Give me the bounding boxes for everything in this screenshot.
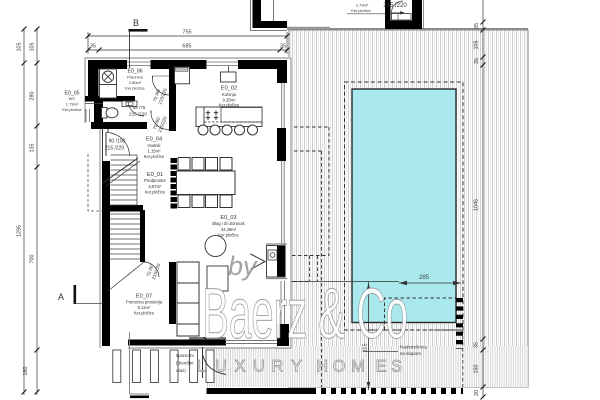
svg-text:1.15m²: 1.15m²: [147, 149, 161, 154]
svg-text:E0_04: E0_04: [146, 137, 162, 143]
svg-text:105: 105: [474, 41, 480, 50]
svg-text:O: O: [333, 358, 346, 376]
svg-text:S: S: [391, 358, 402, 376]
svg-text:Ker.pločice: Ker.pločice: [145, 189, 166, 194]
svg-text:150: 150: [474, 365, 480, 374]
svg-text:Praonica: Praonica: [127, 75, 144, 80]
svg-text:U: U: [253, 358, 265, 376]
svg-text:215 /220: 215 /220: [129, 112, 147, 117]
svg-text:215 /220: 215 /220: [105, 146, 125, 152]
svg-text:Ker.pločice: Ker.pločice: [125, 86, 145, 91]
svg-text:U: U: [215, 358, 227, 376]
svg-text:700: 700: [30, 255, 36, 264]
svg-text:35: 35: [280, 44, 286, 50]
svg-text:Predprostor: Predprostor: [144, 178, 166, 183]
svg-text:Ker.pločice: Ker.pločice: [218, 232, 239, 237]
svg-text:35: 35: [474, 342, 480, 348]
svg-text:Baerz & Co: Baerz & Co: [202, 275, 408, 354]
svg-text:WC: WC: [69, 96, 76, 101]
svg-text:(dvorišni: (dvorišni: [176, 361, 193, 366]
svg-text:1.79m²: 1.79m²: [66, 102, 79, 107]
svg-text:1045: 1045: [474, 199, 480, 211]
svg-text:9.11m²: 9.11m²: [138, 305, 151, 310]
svg-text:E0_02: E0_02: [221, 86, 237, 92]
svg-text:6,87m²: 6,87m²: [148, 184, 162, 189]
svg-text:H: H: [316, 358, 328, 376]
svg-text:1,79m²: 1,79m²: [356, 3, 369, 8]
svg-text:B: B: [133, 18, 139, 28]
svg-text:Ker.pločice: Ker.pločice: [219, 103, 240, 108]
svg-text:X: X: [234, 358, 245, 376]
svg-text:Ker.pločice: Ker.pločice: [134, 311, 155, 316]
svg-text:135: 135: [30, 144, 36, 153]
svg-text:755: 755: [182, 30, 191, 36]
svg-text:Blag i dn.boravak: Blag i dn.boravak: [212, 221, 245, 226]
svg-text:285: 285: [419, 275, 430, 281]
svg-text:A: A: [58, 292, 64, 302]
svg-text:Pomoćna prostorija: Pomoćna prostorija: [126, 300, 163, 305]
svg-text:Ker.pločice: Ker.pločice: [144, 154, 165, 159]
svg-text:180: 180: [23, 367, 29, 376]
svg-text:105: 105: [17, 43, 23, 52]
svg-text:35: 35: [90, 44, 96, 50]
svg-text:1295: 1295: [17, 225, 23, 237]
svg-text:Kuhinja: Kuhinja: [222, 92, 237, 97]
svg-text:Ker.pločice: Ker.pločice: [62, 107, 82, 112]
svg-text:215 /220: 215 /220: [383, 3, 407, 9]
svg-text:90 /100: 90 /100: [109, 139, 126, 145]
svg-text:685: 685: [182, 44, 191, 50]
svg-text:M: M: [351, 358, 365, 376]
svg-text:65 /75: 65 /75: [133, 105, 146, 110]
svg-text:Y: Y: [291, 358, 302, 376]
svg-text:sporedni: sporedni: [176, 353, 194, 358]
svg-text:Ker.pločice: Ker.pločice: [351, 8, 371, 13]
svg-text:E: E: [375, 358, 386, 376]
svg-text:20: 20: [474, 390, 480, 396]
svg-text:R: R: [272, 358, 284, 376]
svg-text:35: 35: [474, 58, 480, 64]
svg-text:280: 280: [30, 92, 36, 101]
svg-text:2.80m²: 2.80m²: [129, 80, 142, 85]
svg-text:34,38m²: 34,38m²: [221, 227, 237, 232]
svg-text:105: 105: [30, 43, 36, 52]
svg-text:35: 35: [474, 23, 480, 29]
svg-text:Hodnik: Hodnik: [147, 143, 161, 148]
svg-text:ulaz): ulaz): [176, 368, 186, 373]
svg-text:L: L: [197, 358, 206, 376]
